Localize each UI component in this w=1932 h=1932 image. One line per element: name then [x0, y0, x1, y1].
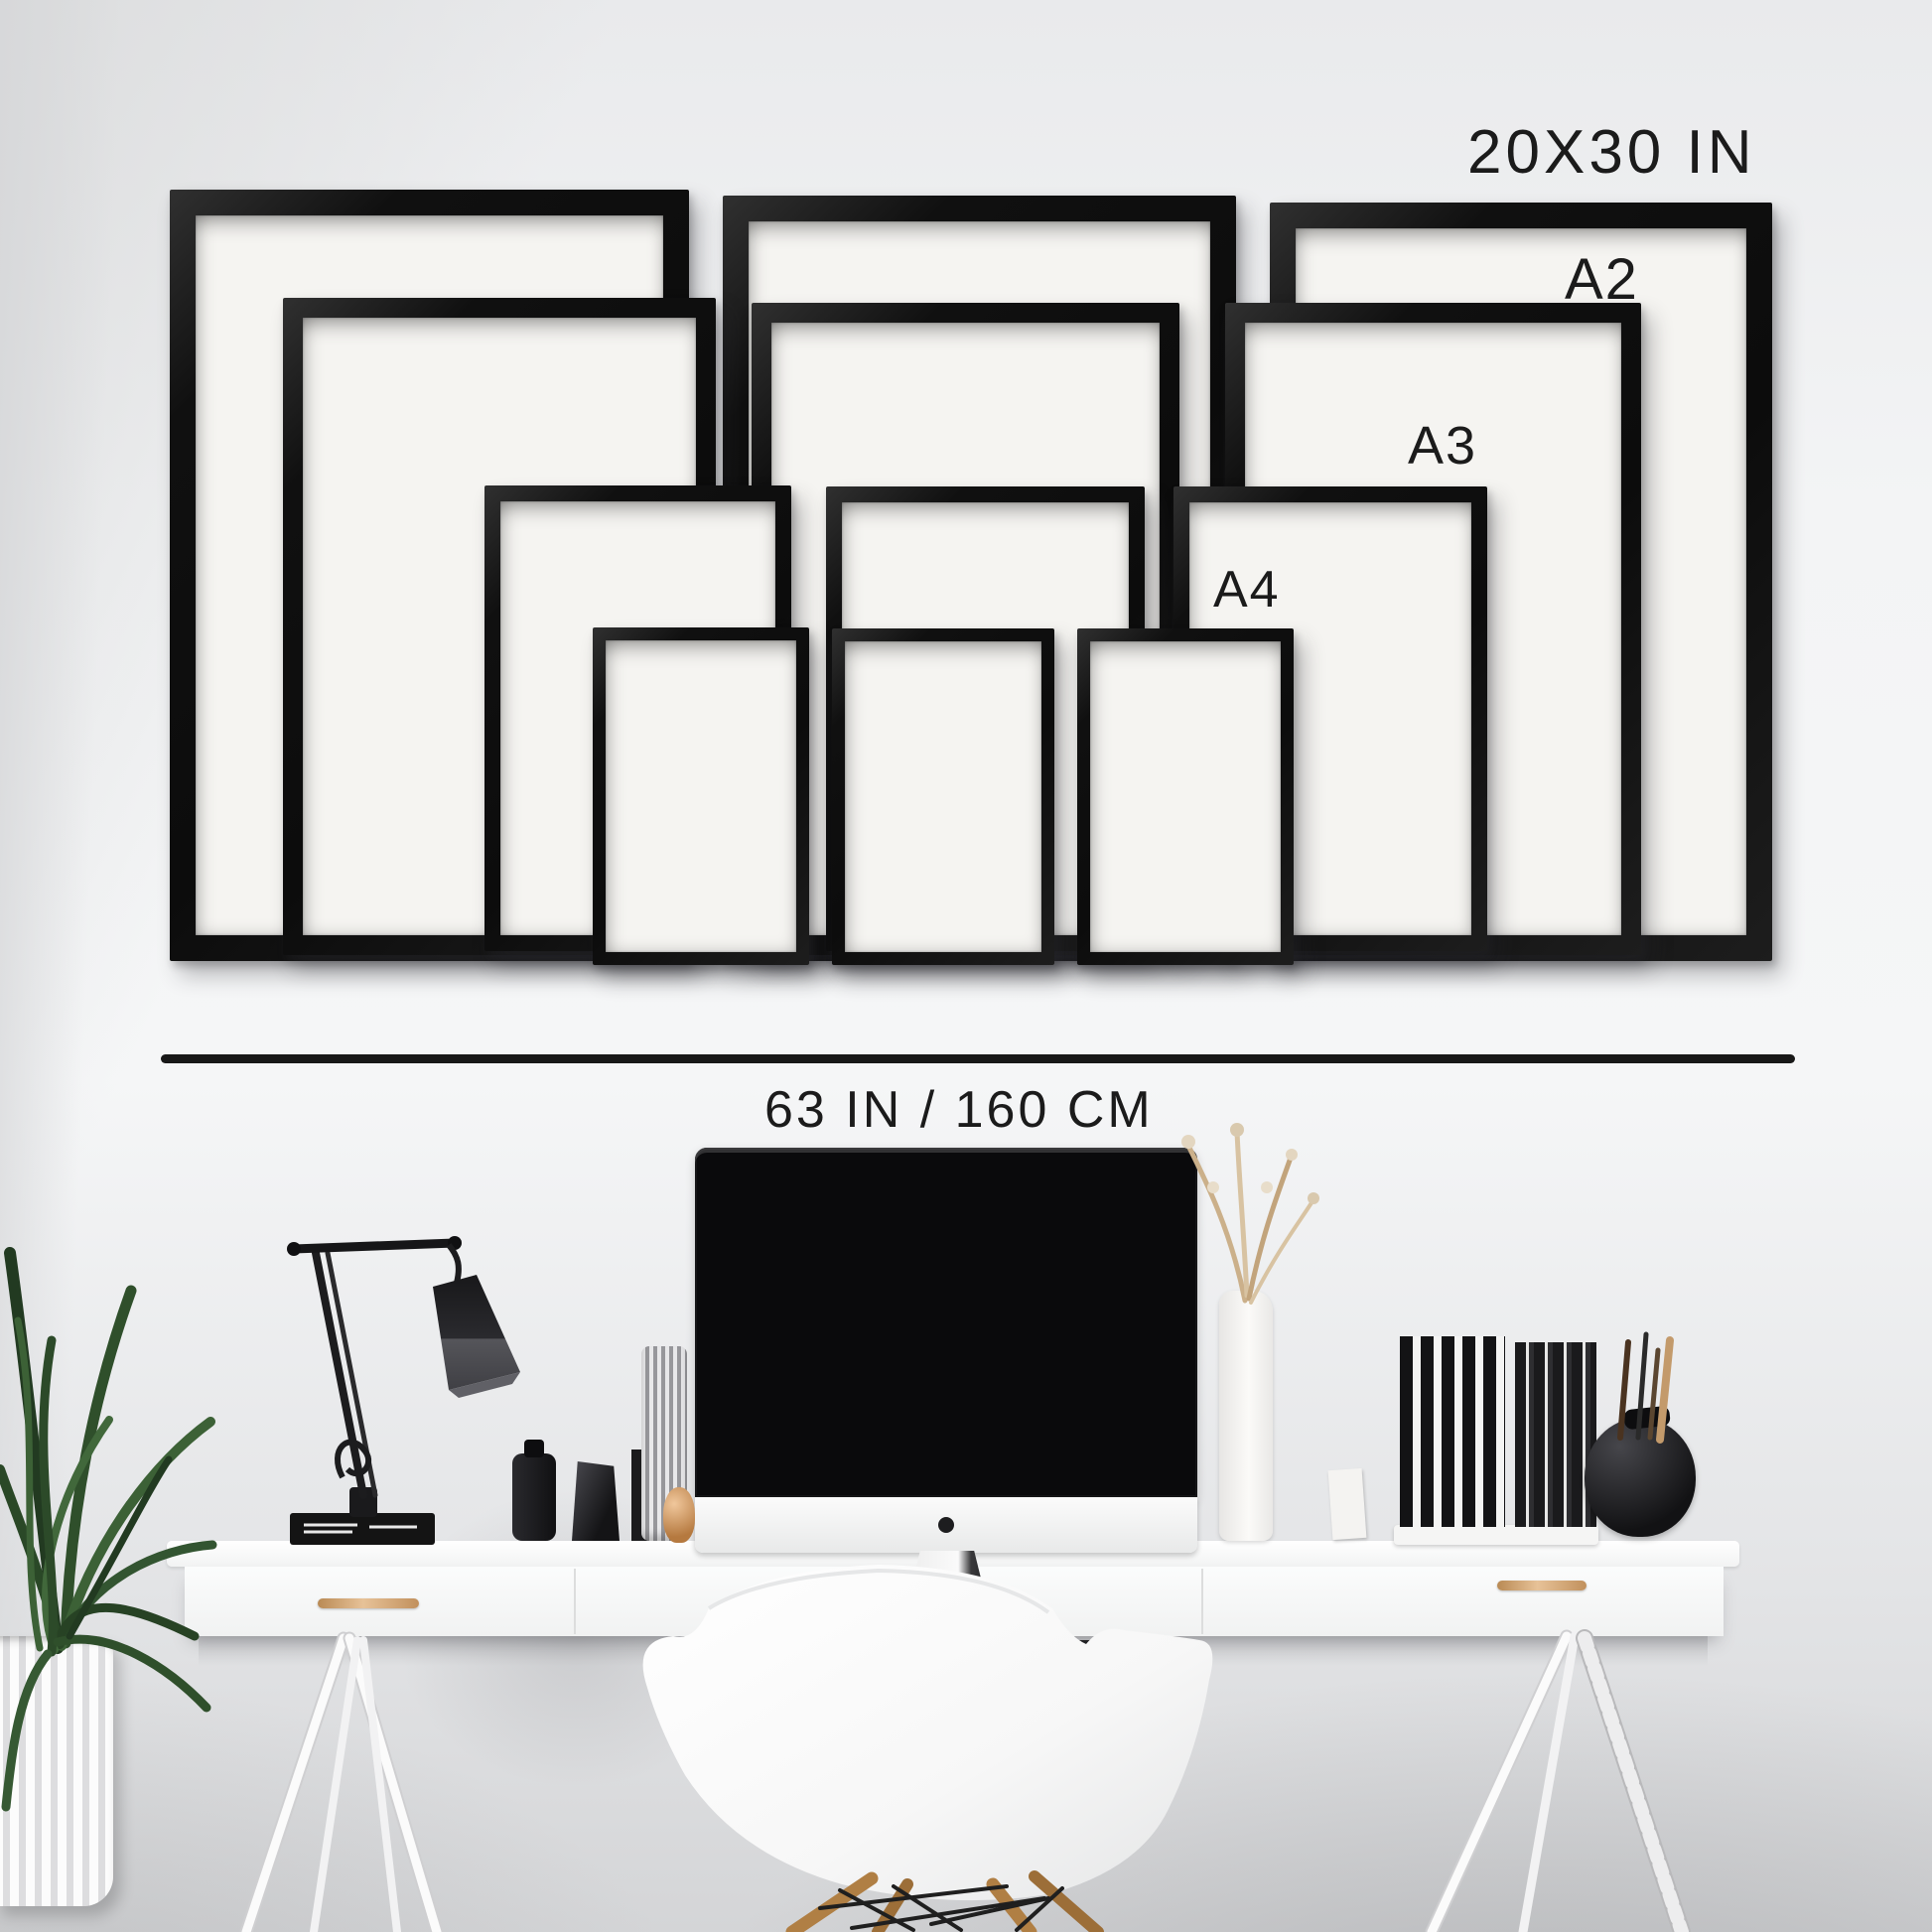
chair: [643, 1565, 1213, 1932]
lamp-shade: [433, 1275, 520, 1390]
desk-leg-right: [1432, 1636, 1682, 1932]
desk-lamp: [287, 1236, 520, 1545]
dried-branches: [1181, 1123, 1319, 1303]
lamp-base-book: [290, 1513, 435, 1545]
scene-vector-layer: [0, 0, 1932, 1932]
desk-leg-left: [246, 1638, 437, 1932]
room-photo: 20X30 IN A2 A3 A4 63 IN / 160 CM: [0, 0, 1932, 1932]
plant-leaves: [0, 1253, 212, 1807]
pencil-sticks: [1620, 1334, 1670, 1440]
rope-wrapped-leg: [1585, 1638, 1682, 1932]
chair-shell: [643, 1565, 1213, 1900]
